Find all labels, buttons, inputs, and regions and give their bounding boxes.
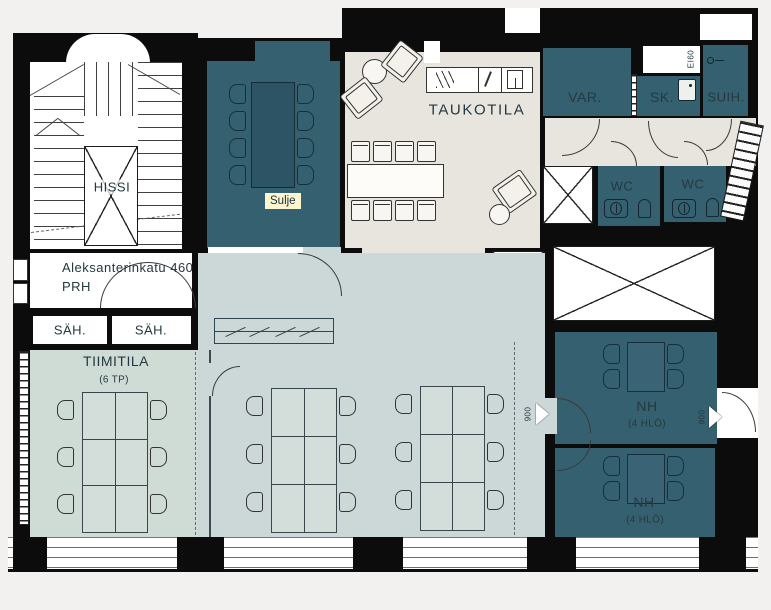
window xyxy=(13,259,28,281)
chair-symbol xyxy=(57,400,74,420)
room-label-var: VAR. xyxy=(568,89,602,105)
chair-symbol xyxy=(57,447,74,467)
room-label-nh-top: NH xyxy=(636,398,657,414)
room-label-wc-right: WC xyxy=(682,177,705,192)
room-label-tiimitila-cap: (6 TP) xyxy=(99,375,128,386)
chair-symbol xyxy=(297,138,314,158)
chair-symbol xyxy=(395,394,412,414)
shower-icon-line xyxy=(715,60,724,61)
glass-partition xyxy=(209,350,211,363)
bg-patch xyxy=(758,0,771,610)
bg-patch xyxy=(198,0,342,38)
zone-boundary xyxy=(514,342,515,535)
sink-icon xyxy=(507,70,523,89)
bg-patch xyxy=(0,0,13,610)
sill-hatch xyxy=(631,74,637,116)
chair-symbol xyxy=(667,481,684,501)
chair-symbol xyxy=(487,394,504,414)
counter-divider xyxy=(501,68,502,92)
desk-cluster xyxy=(271,388,337,533)
chair-symbol xyxy=(229,138,246,158)
shaft xyxy=(553,246,715,321)
toilet-icon xyxy=(672,199,696,218)
chair-symbol xyxy=(150,400,167,420)
door-width-label: 900 xyxy=(524,407,533,422)
door-width-arrow xyxy=(536,403,549,425)
stool-symbol xyxy=(417,200,436,221)
shaft xyxy=(543,166,593,224)
chair-symbol xyxy=(603,344,620,364)
chair-symbol xyxy=(339,444,356,464)
room-label-nh-bottom: NH xyxy=(633,494,654,510)
bg-patch xyxy=(0,0,198,33)
coat-rack-slash xyxy=(299,327,319,337)
chair-symbol xyxy=(246,444,263,464)
chair-symbol xyxy=(395,490,412,510)
stair-flight-right xyxy=(138,62,182,248)
chair-symbol xyxy=(487,490,504,510)
stool-symbol xyxy=(417,141,436,162)
coat-rack-slash xyxy=(275,327,295,337)
coat-rack-symbol xyxy=(214,318,334,344)
room-label-sah-left: SÄH. xyxy=(54,323,86,338)
stool-symbol xyxy=(395,200,414,221)
wall-notch xyxy=(505,8,540,33)
chair-symbol xyxy=(150,494,167,514)
stool-symbol xyxy=(351,141,370,162)
fire-rating-label: EI60 xyxy=(687,50,696,68)
dining-table xyxy=(347,164,444,198)
door-notch xyxy=(424,41,440,63)
chair-symbol xyxy=(339,396,356,416)
chair-symbol xyxy=(297,111,314,131)
counter-divider xyxy=(478,68,479,92)
chair-symbol xyxy=(229,111,246,131)
sink-icon xyxy=(678,79,696,101)
room-suih xyxy=(703,45,748,116)
room-label-hissi: HISSI xyxy=(92,180,132,195)
address-label: Aleksanterinkatu 460 xyxy=(62,260,193,275)
stool-symbol xyxy=(373,141,392,162)
sink-icon xyxy=(706,198,719,217)
coat-rack-slash xyxy=(225,327,245,337)
door-width-arrow xyxy=(709,406,722,428)
chair-symbol xyxy=(229,165,246,185)
chair-symbol xyxy=(150,447,167,467)
chair-symbol xyxy=(57,494,74,514)
stair-arch xyxy=(66,34,150,63)
toilet-icon xyxy=(604,199,628,218)
chair-symbol xyxy=(603,456,620,476)
chair-symbol xyxy=(395,442,412,462)
radiator-hatch xyxy=(19,351,29,525)
coat-rack-slash xyxy=(249,327,269,337)
stair-flight-top xyxy=(84,62,138,116)
room-var xyxy=(543,48,631,116)
chair-symbol xyxy=(487,442,504,462)
close-room-button[interactable]: Sulje xyxy=(265,193,301,209)
shower-icon xyxy=(707,57,714,64)
meeting-table xyxy=(251,82,295,188)
chair-symbol xyxy=(339,492,356,512)
desk-cluster xyxy=(82,392,148,533)
door-width-label: 900 xyxy=(698,410,707,425)
room-label-nh-top-cap: (4 HLÖ) xyxy=(628,419,666,430)
desk-cluster xyxy=(420,386,485,531)
room-label-taukotila: TAUKOTILA xyxy=(429,102,526,119)
plan-bottom-edge xyxy=(8,569,758,572)
chair-symbol xyxy=(246,396,263,416)
nh-table xyxy=(627,342,665,392)
prh-label: PRH xyxy=(62,279,91,294)
room-above-suih xyxy=(700,14,752,40)
stool-symbol xyxy=(351,200,370,221)
facade-pillar xyxy=(13,537,47,571)
chair-symbol xyxy=(229,84,246,104)
sink-icon xyxy=(638,199,651,218)
facade-pillar xyxy=(353,537,403,570)
room-label-sk: SK. xyxy=(650,89,674,105)
room-meeting-notch xyxy=(255,41,330,63)
bg-patch xyxy=(0,572,771,610)
appliance-icon xyxy=(436,71,454,88)
chair-symbol xyxy=(667,344,684,364)
chair-symbol xyxy=(603,481,620,501)
bg-patch xyxy=(342,0,771,8)
stool-symbol xyxy=(395,141,414,162)
zone-boundary xyxy=(195,352,196,535)
room-label-sah-right: SÄH. xyxy=(135,323,167,338)
chair-symbol xyxy=(603,369,620,389)
chair-symbol xyxy=(297,165,314,185)
chair-symbol xyxy=(667,369,684,389)
glass-partition xyxy=(209,396,211,537)
room-label-suih: SUIH. xyxy=(707,90,744,105)
window xyxy=(13,283,28,304)
stool-symbol xyxy=(373,200,392,221)
room-label-nh-bottom-cap: (4 HLÖ) xyxy=(626,515,664,526)
facade-pillar xyxy=(527,537,576,570)
round-table-symbol xyxy=(489,204,510,225)
elevator-shaft xyxy=(84,146,138,246)
facade-pillar xyxy=(699,537,746,571)
floor-plan: HISSI Aleksanterinkatu 460 PRH SÄH. SÄH.… xyxy=(0,0,771,610)
chair-symbol xyxy=(297,84,314,104)
room-label-wc-left: WC xyxy=(611,179,634,194)
chair-symbol xyxy=(246,492,263,512)
facade-pillar xyxy=(177,537,224,570)
chair-symbol xyxy=(667,456,684,476)
room-label-tiimitila: TIIMITILA xyxy=(83,353,149,369)
